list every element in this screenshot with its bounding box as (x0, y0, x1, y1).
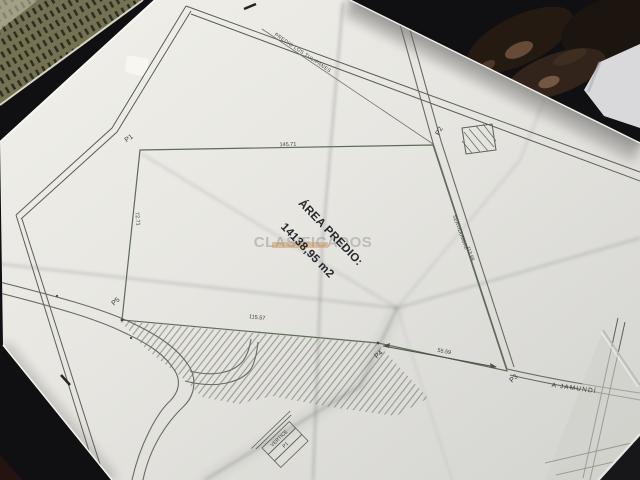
road-point (56, 295, 58, 297)
vertex-point-p5 (121, 319, 124, 322)
vertex-point-p4 (377, 342, 380, 345)
dimension-label-p1-p2: 145.71 (279, 142, 296, 149)
road-point (130, 337, 132, 339)
photo-canvas: VERTICE P1 CLASIFICADOS ÁREA PREDIO: 141… (0, 0, 640, 480)
survey-plan-photo: VERTICE P1 CLASIFICADOS ÁREA PREDIO: 141… (0, 0, 640, 480)
